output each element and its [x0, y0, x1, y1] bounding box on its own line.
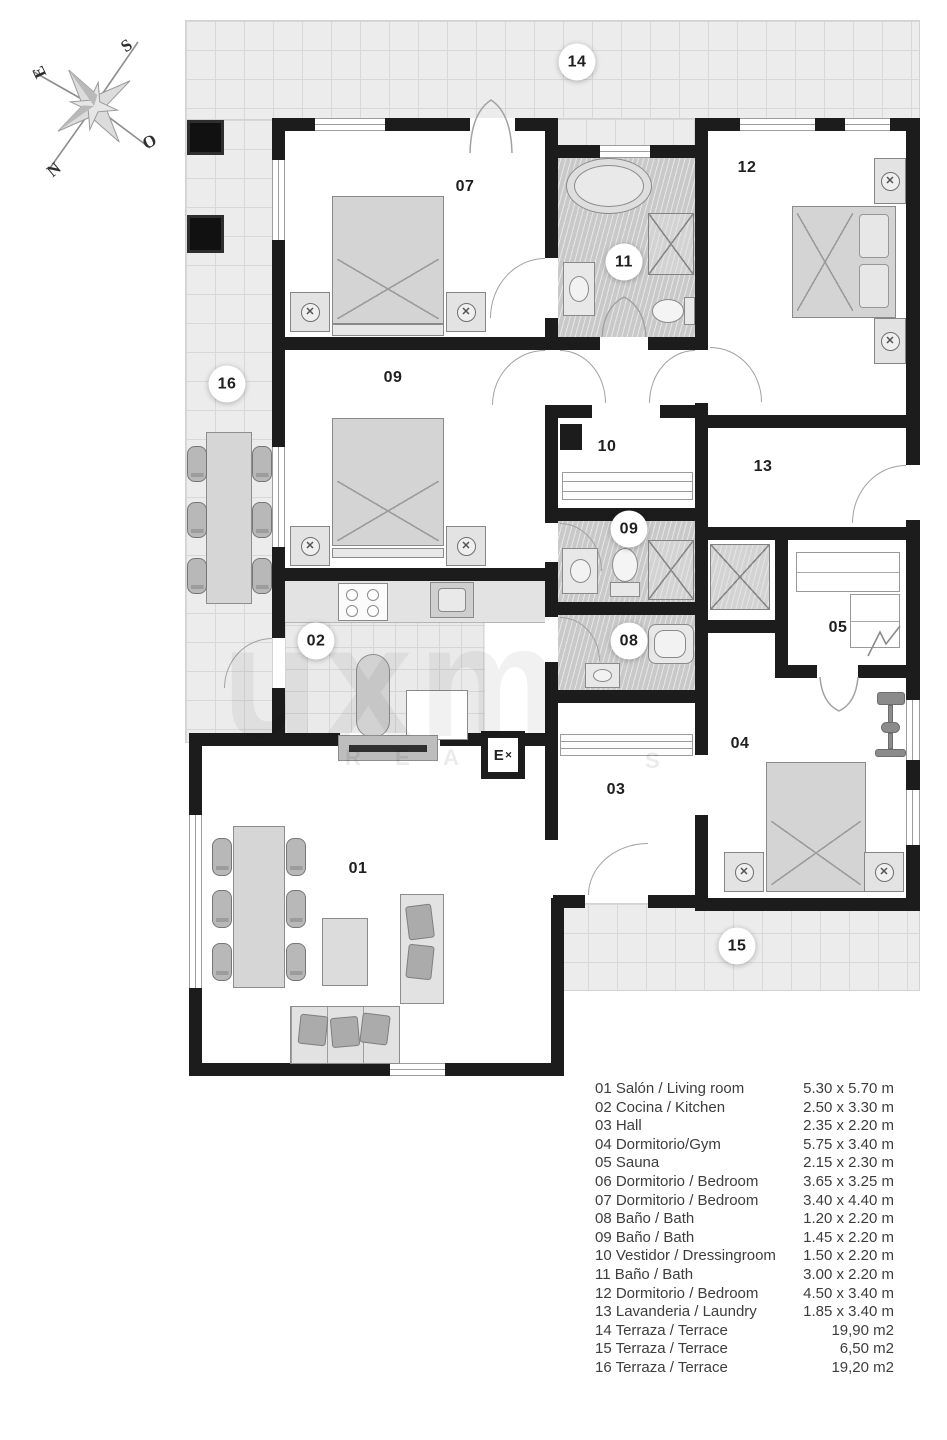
- legend-room-name: 09 Baño / Bath: [595, 1229, 694, 1248]
- watermark-subtext: S: [645, 748, 674, 774]
- exercise-bike-icon: [874, 692, 908, 764]
- legend-room-size: 1.50 x 2.20 m: [803, 1247, 894, 1266]
- legend-row: 10 Vestidor / Dressingroom1.50 x 2.20 m: [595, 1247, 894, 1266]
- window: [600, 145, 650, 158]
- window: [906, 790, 920, 845]
- cushion: [298, 1014, 329, 1047]
- cushion: [330, 1016, 361, 1048]
- legend-room-name: 04 Dormitorio/Gym: [595, 1136, 721, 1155]
- legend-room-size: 1.45 x 2.20 m: [803, 1229, 894, 1248]
- window: [390, 1063, 445, 1076]
- room-label-09a: 09: [384, 369, 403, 387]
- nightstand: ✕: [290, 292, 330, 332]
- wall-segment: [695, 403, 708, 755]
- nightstand: ✕: [874, 158, 906, 204]
- room-label-10: 10: [598, 438, 617, 456]
- lamp-icon: ✕: [881, 332, 900, 351]
- chair: [212, 943, 232, 981]
- wall-segment: [385, 118, 470, 131]
- pillow: [859, 264, 889, 308]
- room-label-05: 05: [829, 619, 848, 637]
- bed: [332, 418, 444, 546]
- legend-row: 01 Salón / Living room5.30 x 5.70 m: [595, 1080, 894, 1099]
- legend-room-name: 08 Baño / Bath: [595, 1210, 694, 1229]
- legend-row: 08 Baño / Bath1.20 x 2.20 m: [595, 1210, 894, 1229]
- legend-room-size: 6,50 m2: [840, 1340, 894, 1359]
- chair: [252, 446, 272, 482]
- bed-bench: [332, 324, 444, 336]
- shower-icon: [710, 544, 770, 610]
- legend-row: 02 Cocina / Kitchen2.50 x 3.30 m: [595, 1099, 894, 1118]
- wall-segment: [650, 145, 695, 158]
- outdoor-table: [206, 432, 252, 604]
- legend-room-name: 05 Sauna: [595, 1154, 659, 1173]
- wall-segment: [558, 405, 592, 418]
- wall-segment: [858, 665, 920, 678]
- legend-row: 03 Hall2.35 x 2.20 m: [595, 1117, 894, 1136]
- wall-segment: [906, 118, 920, 465]
- legend-row: 07 Dormitorio / Bedroom3.40 x 4.40 m: [595, 1192, 894, 1211]
- coffee-table: [322, 918, 368, 986]
- window: [272, 160, 285, 240]
- legend-row: 04 Dormitorio/Gym5.75 x 3.40 m: [595, 1136, 894, 1155]
- decoration: [33, 45, 156, 168]
- wall-segment: [189, 733, 202, 815]
- fixture: [574, 165, 644, 207]
- room-label-16: 16: [209, 366, 246, 403]
- wall-segment: [906, 760, 920, 790]
- wall-segment: [545, 337, 600, 350]
- legend-room-name: 14 Terraza / Terrace: [595, 1322, 728, 1341]
- wall-segment: [695, 527, 920, 540]
- lamp-icon: ✕: [735, 863, 754, 882]
- fixture: [570, 559, 591, 583]
- legend-row: 14 Terraza / Terrace19,90 m2: [595, 1322, 894, 1341]
- room-label-11: 11: [606, 244, 643, 281]
- sink: [585, 663, 620, 688]
- legend-room-size: 2.35 x 2.20 m: [803, 1117, 894, 1136]
- wall-segment: [545, 118, 558, 258]
- door-bath11-icon: [600, 295, 648, 337]
- wall-segment: [695, 898, 920, 911]
- wall-segment: [272, 337, 558, 350]
- closet-lines: [562, 472, 693, 500]
- decoration: [820, 677, 858, 711]
- terrace-14-entry-strip: [556, 118, 695, 148]
- lamp-icon: ✕: [457, 303, 476, 322]
- room-label-02: 02: [298, 623, 335, 660]
- wall-segment: [545, 145, 600, 158]
- toilet-tank: [684, 297, 695, 325]
- nightstand: ✕: [446, 292, 486, 332]
- decoration: [602, 297, 646, 337]
- lamp-icon: ✕: [457, 537, 476, 556]
- chair: [252, 502, 272, 538]
- bed: [792, 206, 896, 318]
- floor-plan-page: ✕ ✕ ✕ ✕ ✕ ✕ ✕ ✕: [0, 0, 947, 1440]
- terrace-14-floor: [185, 20, 920, 120]
- sink: [562, 548, 598, 594]
- legend-row: 06 Dormitorio / Bedroom3.65 x 3.25 m: [595, 1173, 894, 1192]
- room-label-08: 08: [611, 623, 648, 660]
- legend-room-size: 2.50 x 3.30 m: [803, 1099, 894, 1118]
- exercise-bike-part: [888, 733, 893, 749]
- shower-icon: [648, 213, 694, 275]
- legend-row: 12 Dormitorio / Bedroom4.50 x 3.40 m: [595, 1285, 894, 1304]
- chair: [212, 890, 232, 928]
- legend-room-size: 3.40 x 4.40 m: [803, 1192, 894, 1211]
- decoration: [33, 42, 156, 168]
- door-terrace15: [588, 843, 648, 895]
- wall-segment: [272, 118, 285, 160]
- fixture: [593, 669, 612, 682]
- lamp-icon: ✕: [301, 537, 320, 556]
- door-corridor-east: [649, 350, 695, 403]
- blanket-fold-lines: [337, 481, 439, 541]
- legend-room-name: 07 Dormitorio / Bedroom: [595, 1192, 758, 1211]
- cushion: [359, 1012, 390, 1045]
- legend-room-name: 16 Terraza / Terrace: [595, 1359, 728, 1378]
- wall-segment: [545, 318, 558, 337]
- wall-segment: [695, 620, 788, 633]
- legend-room-size: 3.00 x 2.20 m: [803, 1266, 894, 1285]
- chair: [286, 890, 306, 928]
- decoration: [470, 100, 512, 153]
- legend-room-name: 11 Baño / Bath: [595, 1266, 693, 1285]
- wall-segment: [558, 690, 695, 703]
- wall-segment: [551, 898, 564, 1076]
- legend-room-size: 1.20 x 2.20 m: [803, 1210, 894, 1229]
- legend-row: 09 Baño / Bath1.45 x 2.20 m: [595, 1229, 894, 1248]
- compass-rose: S E O N: [10, 14, 180, 189]
- legend-room-size: 19,90 m2: [831, 1322, 894, 1341]
- toilet: [652, 299, 684, 323]
- legend-room-name: 13 Lavanderia / Laundry: [595, 1303, 757, 1322]
- toilet: [612, 548, 638, 582]
- room-label-14: 14: [559, 44, 596, 81]
- room-label-13: 13: [754, 458, 773, 476]
- sink: [563, 262, 595, 316]
- wall-segment: [648, 337, 708, 350]
- legend-room-size: 4.50 x 3.40 m: [803, 1285, 894, 1304]
- legend-row: 11 Baño / Bath3.00 x 2.20 m: [595, 1266, 894, 1285]
- room-label-07: 07: [456, 178, 475, 196]
- nightstand: ✕: [446, 526, 486, 566]
- legend-room-size: 5.75 x 3.40 m: [803, 1136, 894, 1155]
- bathtub-icon: [648, 624, 694, 664]
- fixture: [654, 630, 686, 658]
- wall-segment: [695, 118, 708, 345]
- sauna-bench: [796, 552, 900, 592]
- room-label-04: 04: [731, 735, 750, 753]
- door-corridor-west: [560, 350, 606, 403]
- wall-segment: [775, 665, 817, 678]
- room-label-15: 15: [719, 928, 756, 965]
- legend: 01 Salón / Living room5.30 x 5.70 m02 Co…: [595, 1080, 894, 1378]
- window: [845, 118, 890, 131]
- wall-segment: [272, 568, 558, 581]
- door-main-entrance-icon: [468, 98, 514, 153]
- chair: [286, 943, 306, 981]
- wall-segment: [660, 405, 695, 418]
- toilet-tank: [610, 582, 640, 597]
- chair: [252, 558, 272, 594]
- legend-room-size: 1.85 x 3.40 m: [803, 1303, 894, 1322]
- legend-room-name: 12 Dormitorio / Bedroom: [595, 1285, 758, 1304]
- nightstand: ✕: [290, 526, 330, 566]
- legend-row: 15 Terraza / Terrace6,50 m2: [595, 1340, 894, 1359]
- legend-room-name: 06 Dormitorio / Bedroom: [595, 1173, 758, 1192]
- bed-bench: [332, 548, 444, 558]
- chair: [187, 558, 207, 594]
- bed: [332, 196, 444, 324]
- wall-segment: [695, 815, 708, 905]
- legend-room-name: 15 Terraza / Terrace: [595, 1340, 728, 1359]
- legend-row: 16 Terraza / Terrace19,20 m2: [595, 1359, 894, 1378]
- nightstand: ✕: [864, 852, 904, 892]
- legend-room-name: 02 Cocina / Kitchen: [595, 1099, 725, 1118]
- legend-room-name: 10 Vestidor / Dressingroom: [595, 1247, 776, 1266]
- lamp-icon: ✕: [875, 863, 894, 882]
- cushion: [405, 944, 434, 981]
- bathtub-icon: [566, 158, 652, 214]
- chair: [187, 502, 207, 538]
- wall-segment: [815, 118, 845, 131]
- wall-segment: [695, 415, 920, 428]
- cushion: [405, 904, 435, 941]
- exercise-bike-part: [877, 692, 905, 705]
- dining-table: [233, 826, 285, 988]
- window: [189, 815, 202, 988]
- sofa: [290, 1006, 400, 1064]
- nightstand: ✕: [724, 852, 764, 892]
- door-sauna-icon: [818, 677, 860, 713]
- compass-star-icon: [10, 14, 180, 189]
- lamp-icon: ✕: [301, 303, 320, 322]
- sauna-heater-icon: [866, 624, 902, 658]
- wall-segment: [445, 1063, 564, 1076]
- legend-row: 05 Sauna2.15 x 2.30 m: [595, 1154, 894, 1173]
- chair: [212, 838, 232, 876]
- room-label-01: 01: [349, 860, 368, 878]
- lamp-icon: ✕: [881, 172, 900, 191]
- room-label-09b: 09: [611, 511, 648, 548]
- legend-room-name: 01 Salón / Living room: [595, 1080, 744, 1099]
- bed: [766, 762, 866, 892]
- legend-room-size: 3.65 x 3.25 m: [803, 1173, 894, 1192]
- door-room12: [710, 347, 762, 402]
- room-label-12: 12: [738, 159, 757, 177]
- blanket-fold-lines: [771, 821, 861, 885]
- legend-room-size: 2.15 x 2.30 m: [803, 1154, 894, 1173]
- door-room07: [490, 258, 545, 318]
- shower-icon: [648, 540, 694, 600]
- wall-segment: [775, 540, 788, 678]
- sofa: [400, 894, 444, 1004]
- pillar: [187, 215, 224, 253]
- door-room09: [492, 350, 545, 405]
- wall-segment: [560, 424, 582, 450]
- chair: [286, 838, 306, 876]
- chair: [187, 446, 207, 482]
- legend-row: 13 Lavanderia / Laundry1.85 x 3.40 m: [595, 1303, 894, 1322]
- decoration: [868, 626, 900, 656]
- legend-room-name: 03 Hall: [595, 1117, 642, 1136]
- window: [272, 447, 285, 547]
- blanket-fold-lines: [797, 213, 853, 311]
- wall-segment: [189, 1063, 390, 1076]
- exercise-bike-part: [875, 749, 906, 757]
- fixture: [569, 276, 589, 302]
- door-room13: [852, 465, 906, 523]
- legend-room-size: 5.30 x 5.70 m: [803, 1080, 894, 1099]
- exercise-bike-part: [881, 722, 900, 733]
- wall-segment: [545, 405, 558, 523]
- watermark-subtext: R E A: [345, 745, 473, 771]
- wall-segment: [553, 895, 585, 908]
- window: [315, 118, 385, 131]
- window: [906, 700, 920, 760]
- blanket-fold-lines: [337, 259, 439, 319]
- pillow: [859, 214, 889, 258]
- window: [740, 118, 815, 131]
- legend-room-size: 19,20 m2: [831, 1359, 894, 1378]
- nightstand: ✕: [874, 318, 906, 364]
- wall-segment: [558, 602, 695, 615]
- room-label-03: 03: [607, 781, 626, 799]
- pillar: [187, 120, 224, 155]
